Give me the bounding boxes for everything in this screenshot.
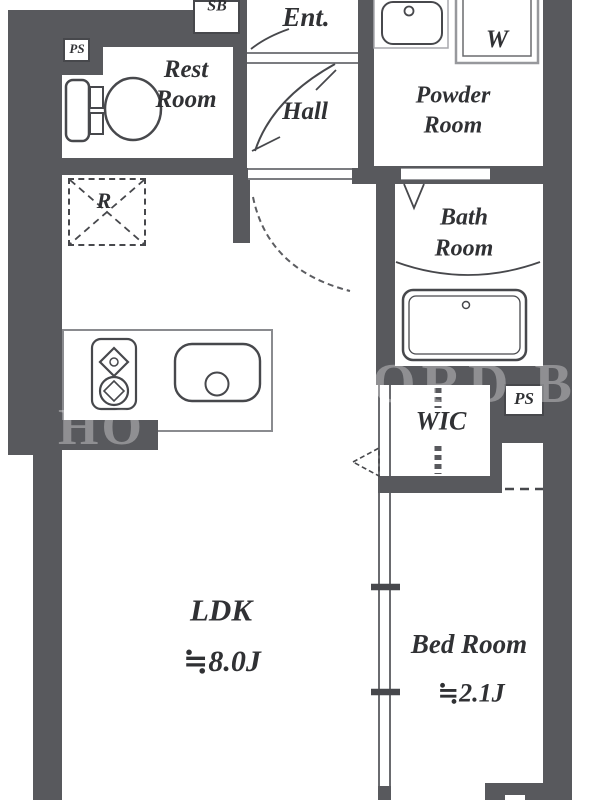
corner-opening <box>505 795 525 800</box>
label-refrigerator: R <box>97 188 112 214</box>
bedroom-closet-nook <box>502 443 543 489</box>
top-white-strip <box>38 0 188 10</box>
label-ps-top: PS <box>69 41 84 57</box>
toilet-niche <box>62 75 103 158</box>
label-hall: Hall <box>282 97 328 127</box>
label-bed-room-size: ≒2.1J <box>437 677 504 708</box>
label-ldk: LDK <box>190 591 252 628</box>
wall-sliver-sb <box>240 0 247 48</box>
ldk-bedroom-partition <box>378 493 391 786</box>
entrance-step <box>247 52 358 64</box>
wall-divider-stub <box>378 786 391 800</box>
wall-below-wic <box>378 476 502 493</box>
label-bath-room-1: Bath <box>440 204 488 233</box>
ldk-door-arc <box>253 197 350 291</box>
label-bed-room: Bed Room <box>411 628 527 660</box>
label-powder-room-2: Room <box>424 112 483 141</box>
watermark-fragment-2: ORD B <box>372 352 578 416</box>
floor-plan: SB Ent. Hall Rest Room PS Powder Room W … <box>0 0 600 800</box>
label-entrance: Ent. <box>282 1 329 33</box>
bath-sliding-door <box>401 168 490 180</box>
wall-hall-corner-block <box>352 167 376 184</box>
label-bath-room-2: Room <box>435 235 494 264</box>
label-shoe-box: SB <box>207 0 227 16</box>
wall-left-lower <box>33 455 62 800</box>
label-powder-room-1: Powder <box>416 82 491 111</box>
label-rest-room-2: Room <box>155 85 216 115</box>
hall-floor-edge <box>248 168 352 180</box>
wic-opening-triangle <box>353 448 379 476</box>
watermark-fragment-1: HO <box>58 398 145 457</box>
label-rest-room-1: Rest <box>164 55 208 85</box>
label-ldk-size: ≒8.0J <box>183 644 261 680</box>
label-washer: W <box>486 25 508 55</box>
